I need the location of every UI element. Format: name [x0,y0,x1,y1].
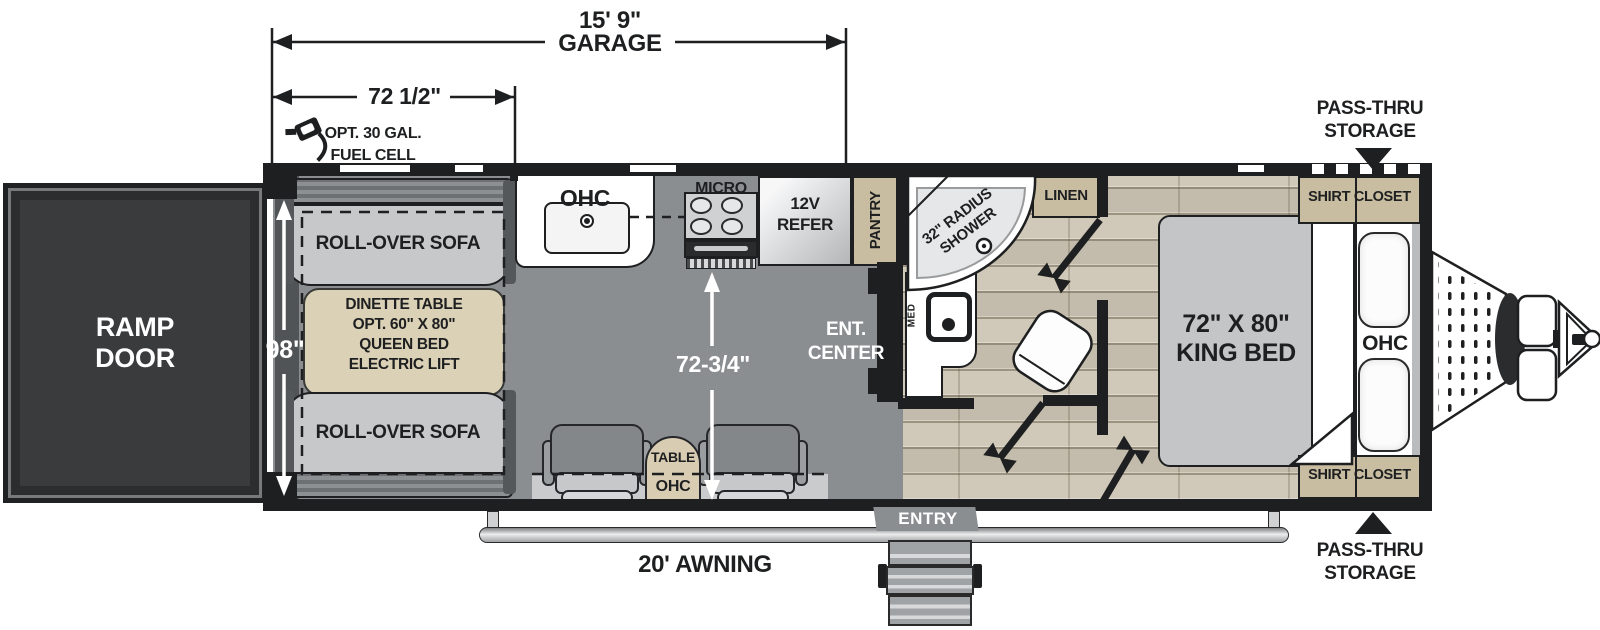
pass-thru-top-label: PASS-THRU STORAGE [1295,98,1445,144]
overlay-graphics [0,0,1600,630]
ent-center-label: ENT. CENTER [786,318,906,366]
med-cabinet-label: MED [908,300,919,330]
sofa-front-label: ROLL-OVER SOFA [295,234,501,255]
propane-tank [1518,350,1556,400]
kitchen-ohc-label: OHC [535,186,635,211]
garage-sub-dim-label: 72 1/2" [352,84,457,109]
table-ohc-label: OHC [647,478,699,495]
fuel-option-line2: FUEL CELL [318,147,428,164]
micro-label: MICRO [686,180,756,197]
pass-thru-arrow-bottom [1355,512,1392,534]
interior-width-label: 72-3/4" [658,352,768,377]
pass-thru-bottom-label: PASS-THRU STORAGE [1295,540,1445,586]
awning-label: 20' AWNING [595,552,815,578]
sofa-rear-label: ROLL-OVER SOFA [295,423,501,444]
shirt-closet-front-label: SHIRT CLOSET [1298,190,1421,206]
linen-label: LINEN [1032,188,1100,204]
bedroom-door [1102,436,1150,503]
jack-wheel [1584,331,1600,347]
pantry-label: PANTRY [868,172,884,268]
interior-width-dimension [704,272,720,500]
entry-label: ENTRY [878,510,978,528]
king-bed-label: 72" X 80" KING BED [1160,310,1312,368]
bedroom-ohc-label: OHC [1352,333,1418,356]
fuel-option-line1: OPT. 30 GAL. [318,125,428,142]
refer-label: 12V REFER [758,193,852,236]
toilet [1007,305,1097,397]
bath-linen-door [1037,220,1100,294]
shirt-closet-rear-label: SHIRT CLOSET [1298,468,1421,484]
dinette-label: DINETTE TABLE OPT. 60" X 80" QUEEN BED E… [303,295,505,376]
bath-entry-door [983,403,1043,474]
propane-tank [1518,296,1556,346]
garage-word-label: GARAGE [545,31,675,57]
table-label: TABLE [647,450,699,465]
hitch-assembly [1426,252,1600,430]
ramp-door-label: RAMP DOOR [55,312,215,374]
floorplan-canvas: 15' 9" GARAGE 72 1/2" OPT. 30 GAL. FUEL … [0,0,1600,630]
pass-thru-arrow-top [1355,148,1392,170]
bed-sheet-fold [1292,414,1352,464]
